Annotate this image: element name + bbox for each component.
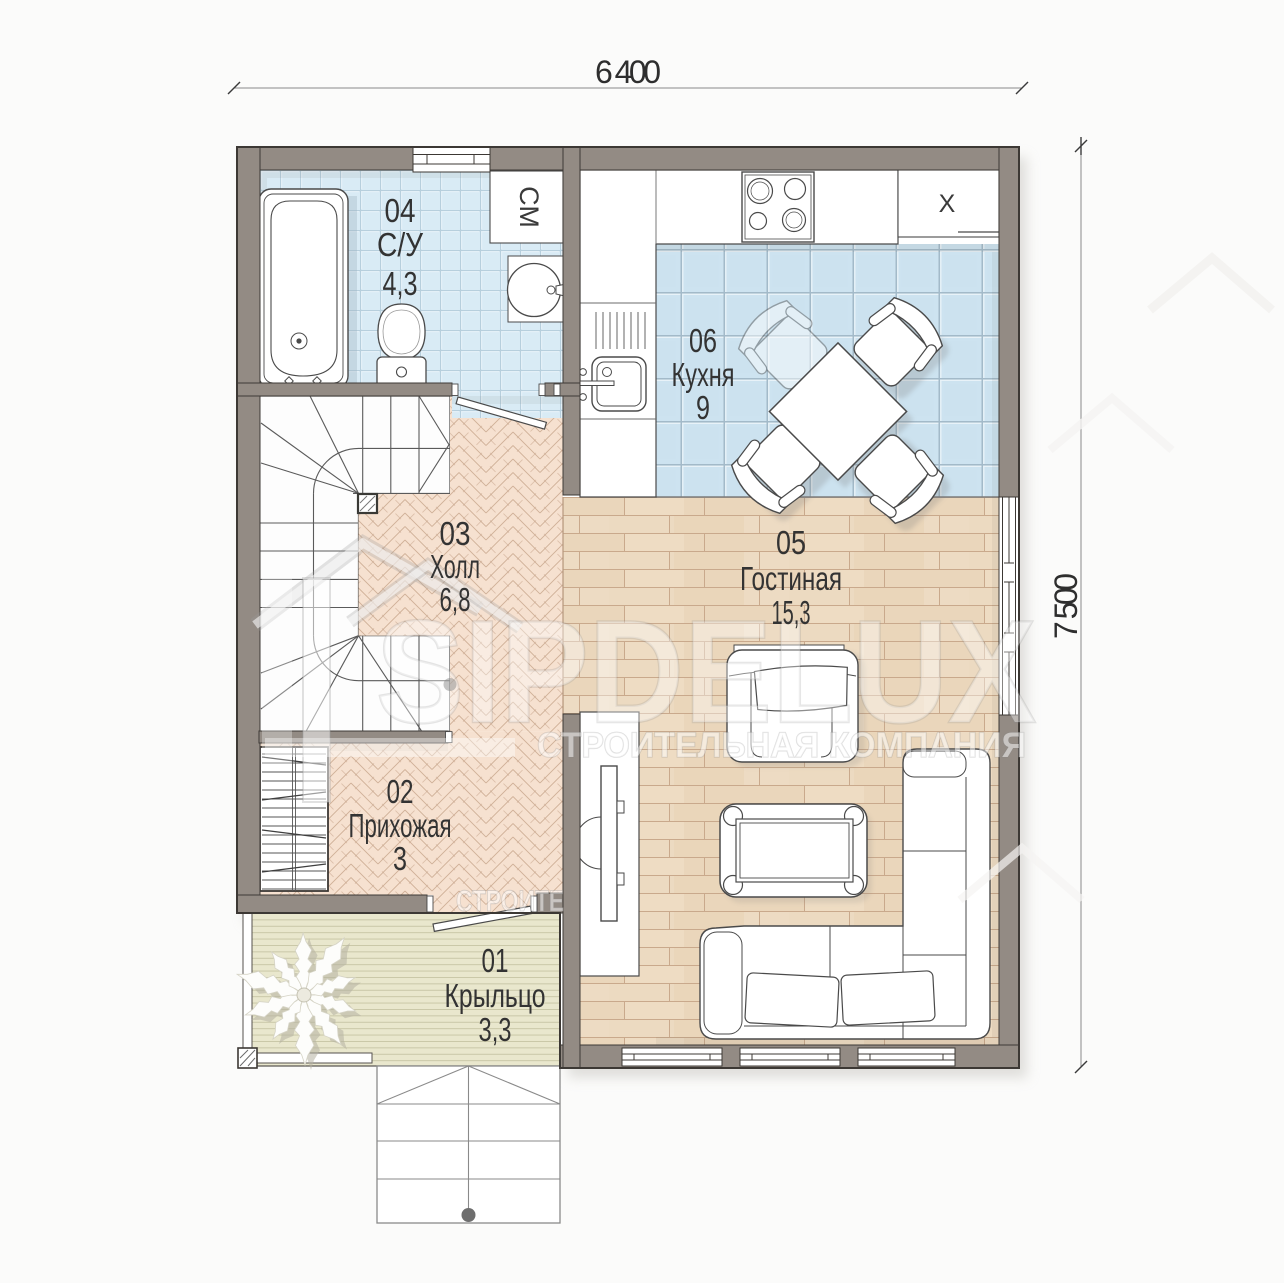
svg-text:С/У: С/У xyxy=(377,226,424,263)
svg-text:6,8: 6,8 xyxy=(440,581,471,618)
svg-text:Кухня: Кухня xyxy=(672,356,735,393)
svg-text:Холл: Холл xyxy=(430,548,480,585)
svg-text:Х: Х xyxy=(939,190,956,218)
svg-text:Крыльцо: Крыльцо xyxy=(445,977,546,1014)
svg-text:9: 9 xyxy=(696,389,710,426)
svg-text:4,3: 4,3 xyxy=(383,265,418,302)
svg-text:15,3: 15,3 xyxy=(772,594,811,631)
svg-text:СТРОИТЕЛЬНАЯ КОМПАНИЯ: СТРОИТЕЛЬНАЯ КОМПАНИЯ xyxy=(537,726,1026,765)
svg-text:7 500: 7 500 xyxy=(1048,573,1084,639)
svg-text:02: 02 xyxy=(387,773,414,810)
svg-text:3: 3 xyxy=(393,840,407,877)
svg-text:05: 05 xyxy=(776,524,806,561)
svg-text:СТРОИТЕ: СТРОИТЕ xyxy=(456,885,564,918)
svg-text:06: 06 xyxy=(689,322,717,359)
svg-text:6 400: 6 400 xyxy=(595,54,661,90)
svg-text:04: 04 xyxy=(385,192,416,229)
svg-text:Прихожая: Прихожая xyxy=(349,807,452,844)
svg-text:СМ: СМ xyxy=(514,186,544,228)
svg-text:3,3: 3,3 xyxy=(479,1011,512,1048)
svg-text:03: 03 xyxy=(440,515,471,552)
svg-text:Гостиная: Гостиная xyxy=(740,560,842,597)
svg-text:01: 01 xyxy=(482,942,509,979)
